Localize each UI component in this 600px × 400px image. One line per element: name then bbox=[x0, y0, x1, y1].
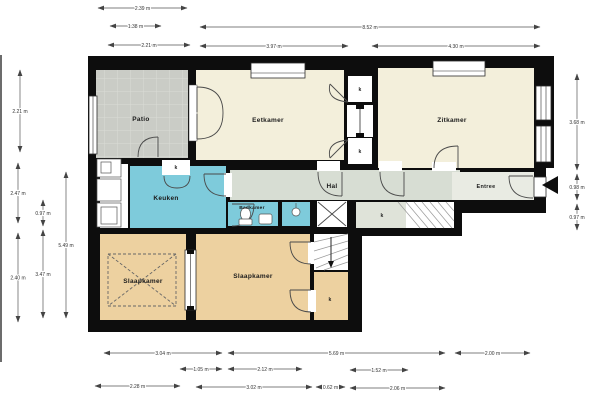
dimension-label: 2.40 m bbox=[10, 276, 25, 282]
room-label-eetkamer: Eetkamer bbox=[252, 117, 284, 124]
room-label-kast-boven-1: k bbox=[358, 87, 361, 93]
room-label-kast-onder: k bbox=[328, 297, 331, 303]
kitchen-unit-detail bbox=[101, 162, 111, 173]
dimension-label: 2.39 m bbox=[135, 6, 150, 12]
window-eetkamer-top bbox=[251, 63, 305, 78]
room-hal bbox=[230, 170, 460, 200]
dimension-label: 3.04 m bbox=[155, 351, 170, 357]
room-label-keuken-kast: k bbox=[174, 165, 177, 171]
window-zitkamer-right-1 bbox=[536, 86, 551, 120]
ensuite-cap bbox=[356, 104, 364, 109]
room-kast-onder bbox=[314, 272, 348, 320]
window-zitkamer-right-2 bbox=[536, 126, 551, 162]
ensuite-cap bbox=[356, 133, 364, 138]
floor-plan-drawing: PatioEetkamerZitkamerKeukenHalBadkamerEn… bbox=[0, 0, 600, 400]
kitchen-sink bbox=[101, 207, 117, 224]
room-label-slaapkamer-2: Slaapkamer bbox=[233, 273, 273, 280]
room-label-zitkamer: Zitkamer bbox=[437, 117, 467, 124]
dimension-label: 3.02 m bbox=[246, 385, 261, 391]
dimension-label: 4.30 m bbox=[448, 44, 463, 50]
front-door-opening bbox=[534, 177, 546, 197]
opening-slaapkamer2-b bbox=[308, 290, 316, 312]
dimension-label: 0.62 m bbox=[323, 385, 338, 391]
room-label-patio: Patio bbox=[132, 116, 149, 123]
opening-keuken bbox=[224, 173, 232, 197]
room-slaapkamer-1 bbox=[100, 234, 186, 320]
opening-cap bbox=[187, 306, 194, 310]
room-patio bbox=[96, 70, 188, 158]
dimension-label: 2.47 m bbox=[10, 191, 25, 197]
room-label-hal: Hal bbox=[326, 183, 337, 190]
dimension-label: 0.97 m bbox=[569, 215, 584, 221]
dimension-label: 8.52 m bbox=[362, 25, 377, 31]
shower-head bbox=[292, 208, 300, 216]
opening-slaapkamer2-a bbox=[308, 242, 316, 264]
opening-hal-1 bbox=[317, 161, 340, 171]
dimension-label: 3.97 m bbox=[266, 44, 281, 50]
room-label-kast-boven-2: k bbox=[358, 149, 361, 155]
dimension-label: 2.28 m bbox=[130, 384, 145, 390]
room-label-badkamer: Badkamer bbox=[239, 205, 265, 211]
dimension-label: 2.12 m bbox=[257, 367, 272, 373]
hatch-bg bbox=[406, 202, 454, 228]
bathroom-sink bbox=[259, 214, 272, 224]
dimension-label: 0.98 m bbox=[569, 185, 584, 191]
dimension-label: 2.21 m bbox=[141, 43, 156, 49]
dimension-label: 1.52 m bbox=[371, 368, 386, 374]
dimension-label: 1.05 m bbox=[193, 367, 208, 373]
dimension-label: 2.00 m bbox=[485, 351, 500, 357]
room-label-entree: Entree bbox=[477, 184, 496, 190]
hatched-area bbox=[398, 202, 454, 228]
dimension-label: 5.69 m bbox=[329, 351, 344, 357]
dimension-label: 3.68 m bbox=[569, 120, 584, 126]
opening-cap bbox=[187, 250, 194, 254]
dimension-label: 5.49 m bbox=[58, 243, 73, 249]
opening-french-doors bbox=[189, 85, 197, 141]
room-eetkamer bbox=[196, 70, 344, 160]
opening-zitkamer bbox=[432, 162, 456, 171]
dimension-label: 2.06 m bbox=[390, 386, 405, 392]
dimension-label: 3.47 m bbox=[35, 272, 50, 278]
dimension-label: 0.97 m bbox=[35, 211, 50, 217]
kitchen-unit-2 bbox=[97, 179, 121, 201]
floor-plan-page: PatioEetkamerZitkamerKeukenHalBadkamerEn… bbox=[0, 0, 600, 400]
room-label-keuken: Keuken bbox=[153, 195, 178, 202]
room-label-kastruimte: k bbox=[380, 213, 383, 219]
dimension-label: 1.38 m bbox=[128, 24, 143, 30]
opening-hal-2 bbox=[379, 161, 402, 171]
dimension-label: 2.21 m bbox=[12, 109, 27, 115]
window-zitkamer-top bbox=[433, 61, 485, 76]
room-label-slaapkamer-1: Slaapkamer bbox=[123, 278, 163, 285]
toilet-tank bbox=[239, 219, 252, 225]
